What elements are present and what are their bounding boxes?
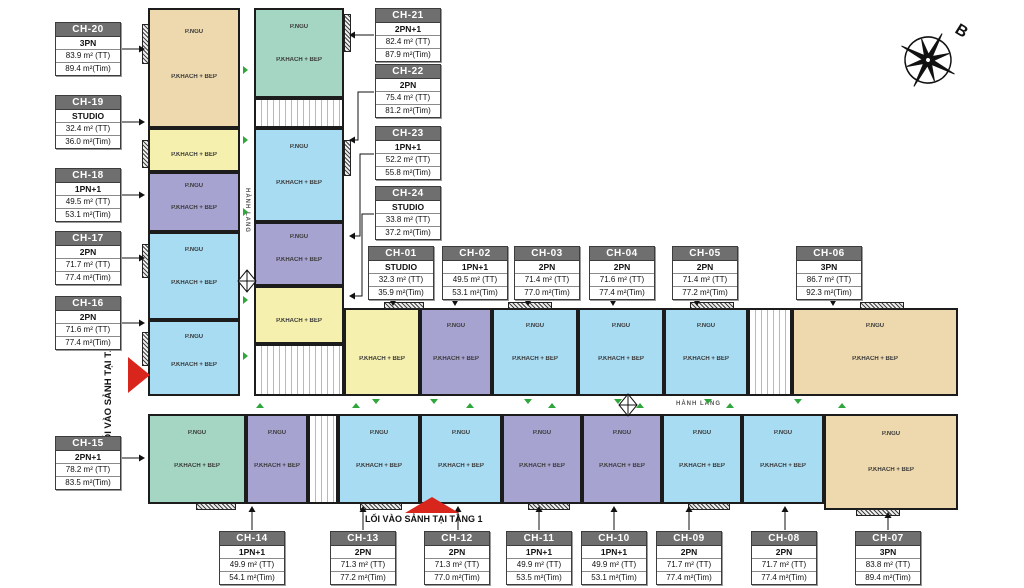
door-arrow-icon xyxy=(524,399,532,404)
living-label: P.KHÁCH + BẾP xyxy=(256,257,342,263)
bedroom-label: P.NGỦ xyxy=(248,430,306,436)
bedroom-label: P.NGỦ xyxy=(666,323,746,329)
unit-area-tt: 82.4 m² (TT) xyxy=(376,36,440,49)
unit-area-tim: 81.2 m²(Tim) xyxy=(376,105,440,117)
callout-ch-18: CH-18 1PN+1 49.5 m² (TT) 53.1 m²(Tim) xyxy=(55,168,121,222)
plan-unit-ch-15: P.NGỦP.KHÁCH + BẾP xyxy=(148,414,246,504)
callout-ch-16: CH-16 2PN 71.6 m² (TT) 77.4 m²(Tim) xyxy=(55,296,121,350)
unit-area-tt: 71.4 m² (TT) xyxy=(673,274,737,287)
unit-area-tt: 33.8 m² (TT) xyxy=(376,214,440,227)
callout-ch-14: CH-14 1PN+1 49.9 m² (TT) 54.1 m²(Tim) xyxy=(219,531,285,585)
unit-area-tt: 52.2 m² (TT) xyxy=(376,154,440,167)
unit-type: 2PN xyxy=(657,546,721,559)
unit-id: CH-13 xyxy=(331,532,395,546)
callout-ch-10: CH-10 1PN+1 49.9 m² (TT) 53.1 m²(Tim) xyxy=(581,531,647,585)
bedroom-label: P.NGỦ xyxy=(664,430,740,436)
unit-id: CH-12 xyxy=(425,532,489,546)
door-arrow-icon xyxy=(704,399,712,404)
callout-ch-13: CH-13 2PN 71.3 m² (TT) 77.2 m²(Tim) xyxy=(330,531,396,585)
living-label: P.KHÁCH + BẾP xyxy=(584,463,660,469)
unit-type: 2PN xyxy=(331,546,395,559)
balcony xyxy=(360,503,402,510)
unit-id: CH-21 xyxy=(376,9,440,23)
core-stairs-bottom-row xyxy=(308,414,338,504)
door-arrow-icon xyxy=(243,296,248,304)
plan-unit-ch-05: P.NGỦP.KHÁCH + BẾP xyxy=(664,308,748,396)
unit-type: 1PN+1 xyxy=(376,141,440,154)
entrance-label-bottom: LỐI VÀO SẢNH TẠI TẦNG 1 xyxy=(365,514,483,524)
bedroom-label: P.NGỦ xyxy=(256,24,342,30)
callout-ch-12: CH-12 2PN 71.3 m² (TT) 77.0 m²(Tim) xyxy=(424,531,490,585)
bedroom-label: P.NGỦ xyxy=(422,323,490,329)
door-arrow-icon xyxy=(838,403,846,408)
core-stairs-upper xyxy=(254,98,344,128)
entrance-arrow-left-icon xyxy=(128,357,150,393)
balcony xyxy=(384,302,424,309)
compass-icon: B xyxy=(887,19,970,100)
plan-unit-ch-16: P.NGỦP.KHÁCH + BẾP xyxy=(148,320,240,396)
living-label: P.KHÁCH + BẾP xyxy=(580,356,662,362)
unit-area-tt: 71.7 m² (TT) xyxy=(752,559,816,572)
floorplan-page: P.NGỦP.KHÁCH + BẾP P.KHÁCH + BẾP P.NGỦP.… xyxy=(0,0,1024,588)
unit-area-tt: 71.7 m² (TT) xyxy=(657,559,721,572)
unit-area-tt: 32.3 m² (TT) xyxy=(369,274,433,287)
balcony xyxy=(528,503,570,510)
unit-id: CH-04 xyxy=(590,247,654,261)
core-stairs-junction xyxy=(254,344,344,396)
plan-unit-ch-08: P.NGỦP.KHÁCH + BẾP xyxy=(742,414,824,504)
unit-area-tim: 77.2 m²(Tim) xyxy=(673,287,737,299)
balcony xyxy=(856,509,900,516)
unit-type: 2PN xyxy=(590,261,654,274)
callout-ch-02: CH-02 1PN+1 49.5 m² (TT) 53.1 m²(Tim) xyxy=(442,246,508,300)
corridor-label: HÀNH LANG xyxy=(676,401,721,407)
unit-area-tim: 37.2 m²(Tim) xyxy=(376,227,440,239)
bedroom-label: P.NGỦ xyxy=(744,430,822,436)
door-arrow-icon xyxy=(726,403,734,408)
plan-unit-ch-11: P.NGỦP.KHÁCH + BẾP xyxy=(502,414,582,504)
door-arrow-icon xyxy=(256,403,264,408)
bedroom-label: P.NGỦ xyxy=(256,234,342,240)
unit-area-tt: 49.9 m² (TT) xyxy=(582,559,646,572)
unit-id: CH-14 xyxy=(220,532,284,546)
plan-unit-ch-01: P.KHÁCH + BẾP xyxy=(344,308,420,396)
callout-ch-09: CH-09 2PN 71.7 m² (TT) 77.4 m²(Tim) xyxy=(656,531,722,585)
living-label: P.KHÁCH + BẾP xyxy=(150,362,238,368)
unit-type: 3PN xyxy=(56,37,120,50)
unit-id: CH-19 xyxy=(56,96,120,110)
unit-type: STUDIO xyxy=(56,110,120,123)
unit-area-tt: 71.7 m² (TT) xyxy=(56,259,120,272)
unit-id: CH-08 xyxy=(752,532,816,546)
core-stairs-top-row xyxy=(748,308,792,396)
balcony xyxy=(344,14,351,52)
unit-type: 2PN xyxy=(56,311,120,324)
balcony xyxy=(344,140,351,176)
unit-area-tim: 53.1 m²(Tim) xyxy=(443,287,507,299)
unit-area-tim: 36.0 m²(Tim) xyxy=(56,136,120,148)
unit-area-tt: 49.9 m² (TT) xyxy=(220,559,284,572)
unit-id: CH-22 xyxy=(376,65,440,79)
door-arrow-icon xyxy=(548,403,556,408)
bedroom-label: P.NGỦ xyxy=(794,323,956,329)
bedroom-label: P.NGỦ xyxy=(504,430,580,436)
unit-area-tim: 89.4 m²(Tim) xyxy=(56,63,120,75)
unit-id: CH-24 xyxy=(376,187,440,201)
plan-unit-ch-06: P.NGỦP.KHÁCH + BẾP xyxy=(792,308,958,396)
plan-unit-ch-24: P.KHÁCH + BẾP xyxy=(254,286,344,344)
bedroom-label: P.NGỦ xyxy=(340,430,418,436)
bedroom-label: P.NGỦ xyxy=(150,247,238,253)
unit-type: 1PN+1 xyxy=(220,546,284,559)
unit-area-tim: 53.5 m²(Tim) xyxy=(507,572,571,584)
bedroom-label: P.NGỦ xyxy=(494,323,576,329)
unit-area-tt: 75.4 m² (TT) xyxy=(376,92,440,105)
unit-area-tim: 77.0 m²(Tim) xyxy=(515,287,579,299)
unit-type: STUDIO xyxy=(369,261,433,274)
unit-area-tt: 71.6 m² (TT) xyxy=(56,324,120,337)
unit-type: 2PN+1 xyxy=(56,451,120,464)
plan-unit-ch-13: P.NGỦP.KHÁCH + BẾP xyxy=(338,414,420,504)
callout-ch-11: CH-11 1PN+1 49.9 m² (TT) 53.5 m²(Tim) xyxy=(506,531,572,585)
bedroom-label: P.NGỦ xyxy=(150,430,244,436)
callout-ch-06: CH-06 3PN 86.7 m² (TT) 92.3 m²(Tim) xyxy=(796,246,862,300)
plan-unit-ch-10: P.NGỦP.KHÁCH + BẾP xyxy=(582,414,662,504)
living-label: P.KHÁCH + BẾP xyxy=(422,463,500,469)
unit-area-tt: 83.8 m² (TT) xyxy=(856,559,920,572)
callout-ch-07: CH-07 3PN 83.8 m² (TT) 89.4 m²(Tim) xyxy=(855,531,921,585)
unit-id: CH-01 xyxy=(369,247,433,261)
unit-area-tt: 49.9 m² (TT) xyxy=(507,559,571,572)
living-label: P.KHÁCH + BẾP xyxy=(256,180,342,186)
living-label: P.KHÁCH + BẾP xyxy=(664,463,740,469)
plan-unit-ch-21: P.NGỦP.KHÁCH + BẾP xyxy=(254,8,344,98)
plan-unit-ch-22: P.NGỦP.KHÁCH + BẾP xyxy=(254,128,344,222)
unit-area-tt: 49.5 m² (TT) xyxy=(443,274,507,287)
callout-ch-21: CH-21 2PN+1 82.4 m² (TT) 87.9 m²(Tim) xyxy=(375,8,441,62)
living-label: P.KHÁCH + BẾP xyxy=(340,463,418,469)
door-arrow-icon xyxy=(243,352,248,360)
living-label: P.KHÁCH + BẾP xyxy=(256,318,342,324)
unit-type: 3PN xyxy=(797,261,861,274)
unit-type: 1PN+1 xyxy=(582,546,646,559)
unit-type: 2PN xyxy=(752,546,816,559)
door-arrow-icon xyxy=(430,399,438,404)
balcony xyxy=(196,503,236,510)
unit-type: 1PN+1 xyxy=(56,183,120,196)
unit-id: CH-20 xyxy=(56,23,120,37)
door-arrow-icon xyxy=(352,403,360,408)
entrance-arrow-bottom-icon xyxy=(405,497,459,513)
unit-id: CH-23 xyxy=(376,127,440,141)
door-arrow-icon xyxy=(794,399,802,404)
unit-id: CH-02 xyxy=(443,247,507,261)
door-arrow-icon xyxy=(372,399,380,404)
unit-type: 2PN xyxy=(673,261,737,274)
door-arrow-icon xyxy=(243,208,248,216)
unit-type: 2PN xyxy=(376,79,440,92)
unit-id: CH-06 xyxy=(797,247,861,261)
unit-area-tim: 53.1 m²(Tim) xyxy=(56,209,120,221)
unit-area-tt: 71.3 m² (TT) xyxy=(331,559,395,572)
living-label: P.KHÁCH + BẾP xyxy=(150,74,238,80)
unit-area-tt: 71.4 m² (TT) xyxy=(515,274,579,287)
callout-ch-01: CH-01 STUDIO 32.3 m² (TT) 35.9 m²(Tim) xyxy=(368,246,434,300)
door-arrow-icon xyxy=(466,403,474,408)
unit-area-tt: 78.2 m² (TT) xyxy=(56,464,120,477)
door-arrow-icon xyxy=(636,403,644,408)
unit-area-tt: 49.5 m² (TT) xyxy=(56,196,120,209)
door-arrow-icon xyxy=(614,399,622,404)
compass-north-label: B xyxy=(952,21,971,42)
living-label: P.KHÁCH + BẾP xyxy=(150,205,238,211)
unit-id: CH-18 xyxy=(56,169,120,183)
unit-type: 2PN xyxy=(425,546,489,559)
unit-id: CH-17 xyxy=(56,232,120,246)
plan-unit-ch-03: P.NGỦP.KHÁCH + BẾP xyxy=(492,308,578,396)
unit-area-tt: 71.3 m² (TT) xyxy=(425,559,489,572)
unit-id: CH-11 xyxy=(507,532,571,546)
callout-ch-24: CH-24 STUDIO 33.8 m² (TT) 37.2 m²(Tim) xyxy=(375,186,441,240)
callout-ch-22: CH-22 2PN 75.4 m² (TT) 81.2 m²(Tim) xyxy=(375,64,441,118)
balcony xyxy=(860,302,904,309)
balcony xyxy=(142,244,149,278)
unit-area-tim: 54.1 m²(Tim) xyxy=(220,572,284,584)
unit-area-tt: 83.9 m² (TT) xyxy=(56,50,120,63)
balcony xyxy=(690,302,734,309)
unit-id: CH-16 xyxy=(56,297,120,311)
unit-id: CH-05 xyxy=(673,247,737,261)
unit-type: STUDIO xyxy=(376,201,440,214)
plan-unit-ch-17: P.NGỦP.KHÁCH + BẾP xyxy=(148,232,240,320)
bedroom-label: P.NGỦ xyxy=(150,29,238,35)
living-label: P.KHÁCH + BẾP xyxy=(744,463,822,469)
plan-unit-ch-23: P.NGỦP.KHÁCH + BẾP xyxy=(254,222,344,286)
door-arrow-icon xyxy=(243,136,248,144)
balcony xyxy=(508,302,552,309)
plan-unit-ch-20: P.NGỦP.KHÁCH + BẾP xyxy=(148,8,240,128)
unit-id: CH-15 xyxy=(56,437,120,451)
plan-unit-ch-12: P.NGỦP.KHÁCH + BẾP xyxy=(420,414,502,504)
unit-area-tt: 32.4 m² (TT) xyxy=(56,123,120,136)
callout-ch-17: CH-17 2PN 71.7 m² (TT) 77.4 m²(Tim) xyxy=(55,231,121,285)
bedroom-label: P.NGỦ xyxy=(422,430,500,436)
unit-area-tim: 77.0 m²(Tim) xyxy=(425,572,489,584)
unit-area-tim: 77.4 m²(Tim) xyxy=(56,272,120,284)
living-label: P.KHÁCH + BẾP xyxy=(826,467,956,473)
bedroom-label: P.NGỦ xyxy=(826,431,956,437)
living-label: P.KHÁCH + BẾP xyxy=(794,356,956,362)
plan-unit-ch-14: P.NGỦP.KHÁCH + BẾP xyxy=(246,414,308,504)
unit-area-tim: 77.4 m²(Tim) xyxy=(752,572,816,584)
plan-unit-ch-19: P.KHÁCH + BẾP xyxy=(148,128,240,172)
unit-type: 2PN+1 xyxy=(376,23,440,36)
unit-type: 2PN xyxy=(56,246,120,259)
unit-area-tim: 55.8 m²(Tim) xyxy=(376,167,440,179)
balcony xyxy=(142,140,149,168)
living-label: P.KHÁCH + BẾP xyxy=(150,463,244,469)
plan-unit-ch-04: P.NGỦP.KHÁCH + BẾP xyxy=(578,308,664,396)
living-label: P.KHÁCH + BẾP xyxy=(666,356,746,362)
living-label: P.KHÁCH + BẾP xyxy=(504,463,580,469)
bedroom-label: P.NGỦ xyxy=(150,334,238,340)
callout-ch-23: CH-23 1PN+1 52.2 m² (TT) 55.8 m²(Tim) xyxy=(375,126,441,180)
living-label: P.KHÁCH + BẾP xyxy=(346,356,418,362)
unit-area-tim: 89.4 m²(Tim) xyxy=(856,572,920,584)
balcony xyxy=(142,24,149,64)
unit-area-tim: 77.4 m²(Tim) xyxy=(590,287,654,299)
unit-area-tim: 92.3 m²(Tim) xyxy=(797,287,861,299)
unit-id: CH-03 xyxy=(515,247,579,261)
living-label: P.KHÁCH + BẾP xyxy=(248,463,306,469)
unit-id: CH-10 xyxy=(582,532,646,546)
unit-area-tim: 77.4 m²(Tim) xyxy=(657,572,721,584)
callout-ch-05: CH-05 2PN 71.4 m² (TT) 77.2 m²(Tim) xyxy=(672,246,738,300)
living-label: P.KHÁCH + BẾP xyxy=(150,152,238,158)
callout-ch-04: CH-04 2PN 71.6 m² (TT) 77.4 m²(Tim) xyxy=(589,246,655,300)
unit-type: 1PN+1 xyxy=(507,546,571,559)
balcony xyxy=(688,503,730,510)
unit-type: 3PN xyxy=(856,546,920,559)
unit-area-tim: 83.5 m²(Tim) xyxy=(56,477,120,489)
plan-unit-ch-07: P.NGỦP.KHÁCH + BẾP xyxy=(824,414,958,510)
bedroom-label: P.NGỦ xyxy=(580,323,662,329)
living-label: P.KHÁCH + BẾP xyxy=(150,280,238,286)
unit-id: CH-07 xyxy=(856,532,920,546)
bedroom-label: P.NGỦ xyxy=(150,183,238,189)
unit-type: 2PN xyxy=(515,261,579,274)
callout-ch-03: CH-03 2PN 71.4 m² (TT) 77.0 m²(Tim) xyxy=(514,246,580,300)
unit-area-tt: 86.7 m² (TT) xyxy=(797,274,861,287)
unit-area-tt: 71.6 m² (TT) xyxy=(590,274,654,287)
unit-type: 1PN+1 xyxy=(443,261,507,274)
unit-area-tim: 77.2 m²(Tim) xyxy=(331,572,395,584)
living-label: P.KHÁCH + BẾP xyxy=(256,57,342,63)
unit-area-tim: 87.9 m²(Tim) xyxy=(376,49,440,61)
living-label: P.KHÁCH + BẾP xyxy=(422,356,490,362)
callout-ch-15: CH-15 2PN+1 78.2 m² (TT) 83.5 m²(Tim) xyxy=(55,436,121,490)
unit-area-tim: 77.4 m²(Tim) xyxy=(56,337,120,349)
bedroom-label: P.NGỦ xyxy=(584,430,660,436)
unit-area-tim: 35.9 m²(Tim) xyxy=(369,287,433,299)
living-label: P.KHÁCH + BẾP xyxy=(494,356,576,362)
door-arrow-icon xyxy=(243,66,248,74)
unit-area-tim: 53.1 m²(Tim) xyxy=(582,572,646,584)
plan-unit-ch-18: P.NGỦP.KHÁCH + BẾP xyxy=(148,172,240,232)
callout-ch-08: CH-08 2PN 71.7 m² (TT) 77.4 m²(Tim) xyxy=(751,531,817,585)
plan-unit-ch-02: P.NGỦP.KHÁCH + BẾP xyxy=(420,308,492,396)
plan-unit-ch-09: P.NGỦP.KHÁCH + BẾP xyxy=(662,414,742,504)
callout-ch-20: CH-20 3PN 83.9 m² (TT) 89.4 m²(Tim) xyxy=(55,22,121,76)
unit-id: CH-09 xyxy=(657,532,721,546)
bedroom-label: P.NGỦ xyxy=(256,144,342,150)
callout-ch-19: CH-19 STUDIO 32.4 m² (TT) 36.0 m²(Tim) xyxy=(55,95,121,149)
